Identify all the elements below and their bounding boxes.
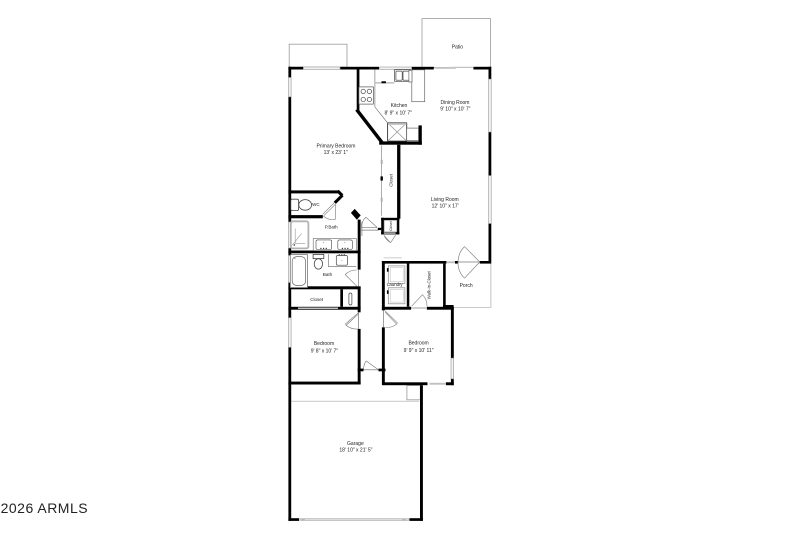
- svg-text:13' x 23' 1": 13' x 23' 1": [324, 150, 348, 156]
- svg-text:9' 9" x 10' 11": 9' 9" x 10' 11": [404, 348, 434, 354]
- svg-text:WC: WC: [312, 202, 320, 207]
- svg-text:9' 10" x 10' 7": 9' 10" x 10' 7": [440, 107, 470, 113]
- svg-text:Garage: Garage: [347, 441, 364, 447]
- svg-text:Walk-In-Closet: Walk-In-Closet: [426, 270, 431, 299]
- svg-text:9' 8" x 10' 7": 9' 8" x 10' 7": [311, 349, 339, 355]
- svg-text:8' 9" x 10' 7": 8' 9" x 10' 7": [384, 110, 412, 116]
- svg-text:Primary Bedroom: Primary Bedroom: [317, 143, 356, 149]
- svg-text:Dining Room: Dining Room: [441, 100, 470, 106]
- svg-text:Laundry: Laundry: [387, 282, 403, 287]
- svg-text:Porch: Porch: [460, 283, 473, 289]
- svg-text:18' 10" x 21' 5": 18' 10" x 21' 5": [339, 448, 372, 454]
- svg-text:Kitchen: Kitchen: [391, 103, 408, 109]
- svg-text:Living Room: Living Room: [431, 197, 459, 203]
- svg-text:2026 ARMLS: 2026 ARMLS: [1, 500, 89, 516]
- svg-text:Bedroom: Bedroom: [314, 341, 334, 347]
- svg-text:Bedroom: Bedroom: [408, 341, 428, 347]
- svg-text:Closet: Closet: [389, 221, 393, 231]
- svg-text:Bath: Bath: [323, 272, 333, 277]
- svg-text:P.Bath: P.Bath: [325, 224, 338, 229]
- svg-text:Closet: Closet: [310, 297, 324, 302]
- svg-text:12' 10" x 17': 12' 10" x 17': [432, 204, 459, 210]
- svg-text:Closet: Closet: [388, 173, 393, 187]
- svg-text:Patio: Patio: [452, 45, 464, 51]
